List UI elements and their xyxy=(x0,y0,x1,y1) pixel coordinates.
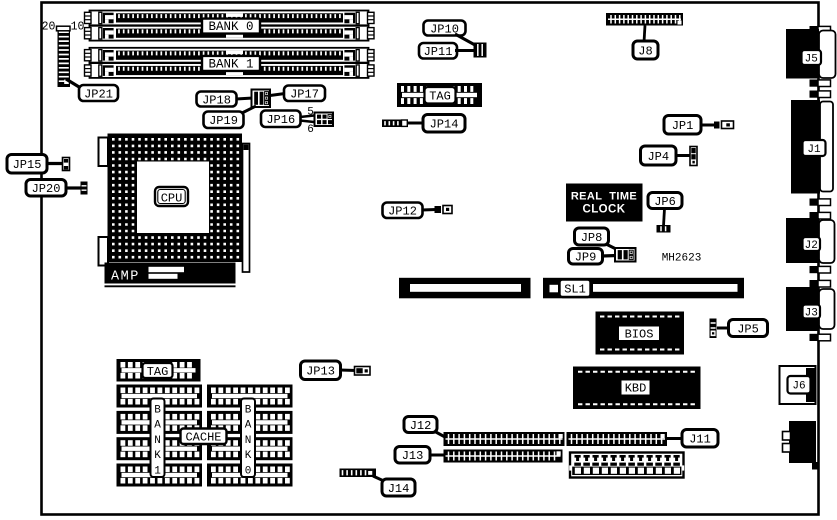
svg-text:JP9: JP9 xyxy=(575,251,597,265)
svg-text:N: N xyxy=(245,435,252,447)
svg-text:J11: J11 xyxy=(689,433,711,447)
svg-text:JP11: JP11 xyxy=(424,45,453,59)
svg-text:JP5: JP5 xyxy=(737,322,759,336)
svg-text:JP13: JP13 xyxy=(306,365,335,379)
svg-text:JP8: JP8 xyxy=(581,231,603,245)
svg-text:AMP: AMP xyxy=(111,270,140,285)
svg-text:JP16: JP16 xyxy=(266,113,295,127)
svg-text:BANK 1: BANK 1 xyxy=(208,57,253,71)
svg-text:REAL TIME: REAL TIME xyxy=(571,191,637,203)
svg-text:JP15: JP15 xyxy=(13,158,42,172)
svg-text:B: B xyxy=(245,405,252,417)
svg-text:J12: J12 xyxy=(410,419,432,433)
svg-text:J13: J13 xyxy=(402,449,424,463)
svg-text:J3: J3 xyxy=(805,307,818,319)
svg-text:J1: J1 xyxy=(807,144,821,156)
svg-text:K: K xyxy=(245,450,252,462)
svg-text:TAG: TAG xyxy=(429,90,451,104)
svg-text:JP17: JP17 xyxy=(290,88,319,102)
svg-text:J8: J8 xyxy=(638,44,652,58)
svg-text:J14: J14 xyxy=(388,482,410,496)
svg-text:0: 0 xyxy=(245,465,252,477)
svg-text:TAG: TAG xyxy=(147,365,169,379)
svg-text:5: 5 xyxy=(307,107,314,119)
svg-text:MH2623: MH2623 xyxy=(662,253,702,265)
svg-text:J6: J6 xyxy=(792,381,805,393)
svg-text:J2: J2 xyxy=(805,240,818,252)
svg-text:A: A xyxy=(245,420,252,432)
svg-text:JP6: JP6 xyxy=(654,195,676,209)
svg-text:JP18: JP18 xyxy=(202,93,231,107)
svg-text:20: 20 xyxy=(42,21,56,34)
svg-text:1: 1 xyxy=(154,465,161,477)
svg-text:K: K xyxy=(154,450,161,462)
svg-text:JP4: JP4 xyxy=(647,150,669,164)
svg-text:CPU: CPU xyxy=(161,191,183,205)
svg-text:SL1: SL1 xyxy=(564,283,586,297)
svg-text:10: 10 xyxy=(71,21,85,34)
svg-text:JP20: JP20 xyxy=(32,182,61,196)
svg-text:N: N xyxy=(154,435,161,447)
svg-text:KBD: KBD xyxy=(625,382,647,396)
svg-text:JP10: JP10 xyxy=(430,22,459,36)
svg-text:JP21: JP21 xyxy=(84,87,113,101)
svg-text:CACHE: CACHE xyxy=(185,431,221,445)
svg-text:B: B xyxy=(154,405,161,417)
svg-text:A: A xyxy=(154,420,161,432)
svg-text:BANK 0: BANK 0 xyxy=(208,20,253,34)
svg-text:JP1: JP1 xyxy=(672,119,694,133)
svg-text:6: 6 xyxy=(307,124,314,136)
svg-text:BIOS: BIOS xyxy=(625,327,654,341)
svg-text:CLOCK: CLOCK xyxy=(583,204,626,216)
svg-text:JP19: JP19 xyxy=(209,114,238,128)
svg-text:JP14: JP14 xyxy=(430,118,459,132)
svg-text:JP12: JP12 xyxy=(388,205,417,219)
svg-text:J5: J5 xyxy=(805,53,818,65)
